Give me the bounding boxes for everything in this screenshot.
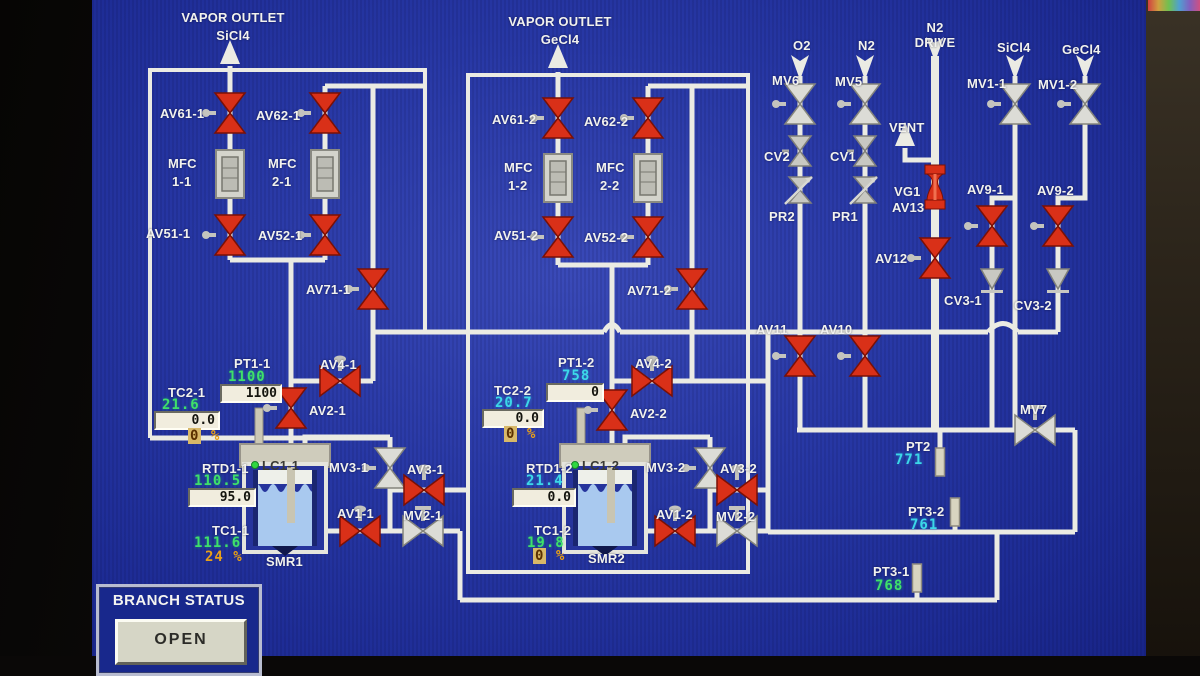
rtd1-2-setpoint: 0.0 — [512, 488, 576, 507]
label-av12: AV12 — [875, 251, 907, 266]
label-av62-1: AV62-1 — [256, 108, 300, 123]
label-cv3-1: CV3-1 — [944, 293, 982, 308]
valve-av11[interactable] — [772, 336, 815, 376]
label-mfc-1-2a: MFC — [504, 160, 533, 175]
mfc-2-2-device[interactable] — [634, 154, 662, 202]
label-cv3-2: CV3-2 — [1014, 298, 1052, 313]
check-valve-cv3-1[interactable] — [981, 269, 1003, 293]
label-mfc-2-1a: MFC — [268, 156, 297, 171]
label-av71-1: AV71-1 — [306, 282, 350, 297]
label-av71-2: AV71-2 — [627, 283, 671, 298]
pt2-sensor-icon — [936, 448, 945, 476]
label-mv5: MV5 — [835, 74, 862, 89]
label-smr1: SMR1 — [266, 554, 303, 569]
tc1-2-percent: 0 % — [533, 548, 565, 564]
pt1-1-value: 1100 — [228, 369, 266, 385]
valve-av12[interactable] — [907, 238, 950, 278]
label-pr1: PR1 — [832, 209, 858, 224]
valve-av51-1[interactable] — [202, 215, 245, 255]
label-av61-1: AV61-1 — [160, 106, 204, 121]
valve-av71-1[interactable] — [345, 269, 388, 309]
label-cv1: CV1 — [830, 149, 856, 164]
label-av9-1: AV9-1 — [967, 182, 1004, 197]
label-lc1-2: LC1-2 — [582, 458, 619, 473]
percent-sign: % — [233, 549, 242, 565]
valve-av10[interactable] — [837, 336, 880, 376]
label-mv1-2: MV1-2 — [1038, 77, 1077, 92]
label-mv2-1: MV2-1 — [403, 508, 442, 523]
label-av11: AV11 — [756, 322, 788, 337]
percent-sign: % — [556, 548, 565, 564]
pt1-2-value: 758 — [562, 368, 590, 384]
vapor-outlet-sicl4-arrow-icon — [220, 40, 240, 64]
label-av51-1: AV51-1 — [146, 226, 190, 241]
label-av61-2: AV61-2 — [492, 112, 536, 127]
label-av3-1: AV3-1 — [407, 462, 444, 477]
label-mfc-1-1b: 1-1 — [172, 174, 191, 189]
label-av52-2: AV52-2 — [584, 230, 628, 245]
label-av3-2: AV3-2 — [720, 461, 757, 476]
rtd1-2-value: 21.4 — [526, 473, 564, 489]
label-av4-1: AV4-1 — [320, 357, 357, 372]
pt2-value: 771 — [895, 452, 923, 468]
percent-sign: % — [211, 428, 220, 444]
tc1-1-percent: 24 % — [205, 549, 243, 565]
mfc-1-2-device[interactable] — [544, 154, 572, 202]
label-mv6: MV6 — [772, 73, 799, 88]
diagram-canvas — [0, 0, 1200, 676]
label-av9-2: AV9-2 — [1037, 183, 1074, 198]
tc2-2-percent-value: 0 — [504, 426, 517, 442]
label-sicl4-feed: SiCl4 — [997, 40, 1031, 55]
tc2-2-percent: 0 % — [504, 426, 536, 442]
label-av2-2: AV2-2 — [630, 406, 667, 421]
label-av13: AV13 — [892, 200, 924, 215]
label-n2: N2 — [858, 38, 875, 53]
label-mfc-2-2a: MFC — [596, 160, 625, 175]
label-pr2: PR2 — [769, 209, 795, 224]
label-av4-2: AV4-2 — [635, 356, 672, 371]
label-n2-drive-2: DRIVE — [905, 35, 965, 50]
valve-av61-1[interactable] — [202, 93, 245, 133]
valve-av62-1[interactable] — [297, 93, 340, 133]
gecl4-inlet-arrow-icon — [1076, 55, 1094, 80]
label-mfc-1-2b: 1-2 — [508, 178, 527, 193]
tc2-1-percent-value: 0 — [188, 428, 201, 444]
tc2-1-percent: 0 % — [188, 428, 220, 444]
pt3-1-sensor-icon — [913, 564, 922, 592]
label-gecl4-feed: GeCl4 — [1062, 42, 1101, 57]
pt3-2-value: 761 — [910, 517, 938, 533]
label-mfc-2-1b: 2-1 — [272, 174, 291, 189]
label-mv2-2: MV2-2 — [716, 509, 755, 524]
label-av1-1: AV1-1 — [337, 506, 374, 521]
vapor-outlet-sicl4-title: VAPOR OUTLET — [168, 10, 298, 25]
regulator-pr1[interactable] — [850, 177, 877, 204]
valve-av61-2[interactable] — [530, 98, 573, 138]
valve-av52-1[interactable] — [297, 215, 340, 255]
label-o2: O2 — [793, 38, 811, 53]
branch-status-title: BRANCH STATUS — [99, 592, 259, 609]
valve-mv6[interactable] — [772, 84, 815, 124]
valve-vg1-av13[interactable] — [925, 165, 945, 209]
label-smr2: SMR2 — [588, 551, 625, 566]
label-av2-1: AV2-1 — [309, 403, 346, 418]
label-av10: AV10 — [820, 322, 852, 337]
label-mv1-1: MV1-1 — [967, 76, 1006, 91]
vapor-outlet-gecl4-title: VAPOR OUTLET — [495, 14, 625, 29]
tc1-2-percent-value: 0 — [533, 548, 546, 564]
smr1-vessel — [240, 408, 330, 556]
label-mfc-1-1a: MFC — [168, 156, 197, 171]
valve-mv5[interactable] — [837, 84, 880, 124]
branch-status-panel: BRANCH STATUS OPEN — [96, 584, 262, 676]
valve-av9-2[interactable] — [1030, 206, 1073, 246]
lc1-1-led-icon — [252, 462, 259, 469]
label-vg1: VG1 — [894, 184, 921, 199]
tc1-1-percent-value: 24 — [205, 549, 224, 565]
mfc-1-1-device[interactable] — [216, 150, 244, 198]
label-av62-2: AV62-2 — [584, 114, 628, 129]
valve-mv3-1[interactable] — [362, 448, 405, 488]
check-valve-cv3-2[interactable] — [1047, 269, 1069, 293]
pt3-1-value: 768 — [875, 578, 903, 594]
monitor-photo: VAPOR OUTLET SiCl4 VAPOR OUTLET GeCl4 AV… — [0, 0, 1200, 676]
valve-av9-1[interactable] — [964, 206, 1007, 246]
sicl4-inlet-arrow-icon — [1006, 55, 1024, 80]
label-cv2: CV2 — [764, 149, 790, 164]
label-mv3-1: MV3-1 — [329, 460, 368, 475]
vapor-outlet-gecl4-gas: GeCl4 — [495, 32, 625, 47]
vapor-outlet-gecl4-arrow-icon — [548, 44, 568, 68]
vapor-outlet-sicl4-gas: SiCl4 — [168, 28, 298, 43]
regulator-pr2[interactable] — [785, 177, 812, 204]
pt1-1-setpoint: 1100 — [220, 384, 282, 403]
pt3-2-sensor-icon — [951, 498, 960, 526]
label-vent: VENT — [889, 120, 924, 135]
label-mfc-2-2b: 2-2 — [600, 178, 619, 193]
label-mv3-2: MV3-2 — [646, 460, 685, 475]
rtd1-1-value: 110.5 — [194, 473, 241, 489]
label-av52-1: AV52-1 — [258, 228, 302, 243]
label-av1-2: AV1-2 — [656, 507, 693, 522]
label-pt3-1: PT3-1 — [873, 564, 909, 579]
label-av51-2: AV51-2 — [494, 228, 538, 243]
mfc-2-1-device[interactable] — [311, 150, 339, 198]
label-n2-drive-1: N2 — [905, 20, 965, 35]
pt1-2-setpoint: 0 — [546, 383, 604, 402]
branch-status-open-button[interactable]: OPEN — [115, 619, 247, 665]
rtd1-1-setpoint: 95.0 — [188, 488, 256, 507]
percent-sign: % — [527, 426, 536, 442]
label-mv7: MV7 — [1020, 402, 1047, 417]
label-lc1-1: LC1-1 — [262, 458, 299, 473]
